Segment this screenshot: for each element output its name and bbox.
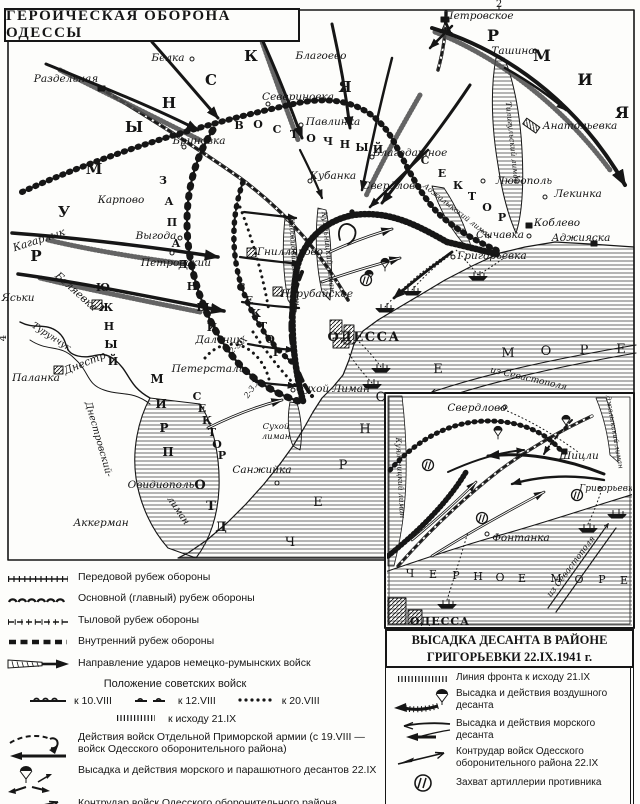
map-label: К — [244, 47, 258, 65]
map-label: Карпово — [97, 194, 145, 206]
legend-label: Передовой рубеж обороны — [78, 571, 384, 583]
legend-label: Линия фронта к исходу 21.IX — [456, 672, 628, 684]
map-title: ГЕРОИЧЕСКАЯ ОБОРОНА ОДЕССЫ — [6, 8, 298, 42]
map-label: А — [439, 18, 452, 37]
map-label: Петровское — [443, 10, 513, 22]
map-label: Благоево — [295, 50, 347, 62]
map-label: Е — [429, 568, 437, 581]
map-label: С — [237, 281, 246, 294]
map-label: ОДЕССА — [327, 330, 400, 345]
map-label: И — [155, 397, 166, 411]
map-label: Ташино — [491, 45, 534, 57]
inset-title-box: ВЫСАДКА ДЕСАНТА В РАЙОНЕ ГРИГОРЬЕВКИ 22.… — [385, 629, 634, 668]
map-label: О — [253, 118, 263, 131]
legend-label: к исходу 21.IX — [168, 713, 236, 725]
landing-symbol-icon — [6, 764, 78, 794]
map-label: Ы — [125, 118, 143, 136]
map-label: Турунчук — [30, 321, 73, 354]
map-label: У — [58, 203, 70, 221]
legend-item-main-line: Основной (главный) рубеж обороны — [6, 588, 384, 610]
pos-12-symbol-icon — [132, 693, 172, 708]
map-label: Сухой — [263, 422, 290, 432]
legend-label: Внутренний рубеж обороны — [78, 635, 384, 647]
pos-21-symbol-icon — [114, 711, 158, 726]
legend-right: Линия фронта к исходу 21.IX Высадка и де… — [385, 667, 634, 804]
map-label: Ы — [196, 301, 209, 314]
map-label: Ч — [406, 567, 415, 580]
map-label: Днестровский- — [82, 399, 114, 478]
primorsk-army-symbol-icon — [6, 731, 78, 761]
map-label: Ч — [285, 535, 295, 550]
map-label: Н — [162, 94, 176, 112]
map-page: СвердловоШицлиГригорьевкаФонтанкаОДЕССАи… — [0, 0, 640, 804]
pos-10-symbol-icon — [28, 693, 68, 708]
air-landing-symbol-icon — [390, 686, 456, 714]
front-line-21-symbol-icon — [390, 672, 456, 684]
legend-label: Действия войск Отдельной Приморской арми… — [78, 731, 384, 755]
map-label: Т — [206, 499, 216, 514]
legend-label: Контрудар войск Одесского оборонительног… — [78, 797, 384, 804]
map-label: Свердлово — [447, 402, 506, 414]
map-label: Севериновка — [262, 91, 334, 103]
legend-label: к 12.VIII — [178, 695, 216, 707]
legend-label: Высадка и действия воздушного десанта — [456, 688, 628, 712]
map-label: Т — [290, 128, 299, 141]
map-label: Овидиополь — [128, 479, 195, 491]
inner-line-symbol-icon — [6, 634, 78, 648]
map-label: С — [421, 154, 430, 167]
map-label: Нерубайское — [280, 288, 353, 300]
map-title-box: ГЕРОИЧЕСКАЯ ОБОРОНА ОДЕССЫ — [4, 8, 300, 42]
map-label: Р — [273, 346, 281, 359]
map-label: Коблево — [533, 217, 580, 229]
map-label: Аджияска — [551, 232, 611, 244]
map-label: А — [165, 195, 174, 208]
map-label: Т — [468, 190, 477, 203]
map-label: О — [574, 573, 583, 586]
map-label: Белка — [150, 52, 184, 64]
legend-item-inner-line: Внутренний рубеж обороны — [6, 631, 384, 653]
map-label: Раздельная — [33, 73, 98, 85]
forward-line-symbol-icon — [6, 570, 78, 584]
map-label: Р — [218, 449, 226, 462]
map-label: Е — [433, 362, 443, 377]
rear-line-symbol-icon — [6, 613, 78, 627]
map-label: В — [234, 119, 243, 132]
legend-left: Передовой рубеж обороны Основной (главны… — [6, 566, 384, 804]
map-label: 4 — [0, 335, 9, 341]
legend-label: Тыловой рубеж обороны — [78, 614, 384, 626]
map-label: Ю — [96, 281, 110, 294]
legend-item-air-landing: Высадка и действия воздушного десанта — [390, 686, 628, 714]
map-label: Р — [452, 569, 460, 582]
counterattack-22-arrow-icon — [390, 748, 456, 768]
legend-label: к 10.VIII — [74, 695, 112, 707]
map-label: Д — [215, 520, 227, 535]
map-label: Р — [498, 211, 506, 224]
map-label: Яськи — [0, 292, 34, 304]
main-line-symbol-icon — [6, 591, 78, 605]
map-label: Е — [245, 294, 253, 307]
pos-20-symbol-icon — [236, 693, 276, 708]
map-label: Н — [473, 570, 483, 583]
main-map-svg: СвердловоШицлиГригорьевкаФонтанкаОДЕССАи… — [0, 0, 640, 640]
map-label: Р — [580, 343, 589, 358]
map-label: Выгода — [135, 230, 177, 242]
map-label: Я — [615, 103, 629, 122]
map-label: Н — [359, 422, 370, 437]
map-label: 2-3.X — [242, 377, 262, 401]
map-label: Т — [259, 320, 268, 333]
map-label: Паланка — [11, 372, 60, 384]
map-label: Н — [340, 138, 350, 151]
map-label: Григорьевка — [578, 484, 638, 494]
map-label: Григорьевка — [456, 250, 526, 262]
map-label: Санжийка — [232, 464, 291, 476]
map-label: К — [453, 179, 463, 192]
map-label: Петровский — [140, 257, 211, 269]
map-label: Я — [338, 78, 351, 96]
map-label: Р — [30, 247, 41, 265]
map-label: Й — [108, 353, 118, 368]
map-label: Ы — [355, 141, 368, 154]
sukhoy-liman — [288, 402, 301, 450]
legend-label: к 20.VIII — [282, 695, 320, 707]
map-label: Кубанка — [309, 170, 356, 182]
map-label: Р — [159, 421, 168, 435]
counterattack-arrow-icon — [6, 797, 78, 804]
map-label: М — [550, 572, 561, 585]
map-label: О — [194, 478, 205, 493]
map-label: Е — [518, 572, 526, 585]
map-label: Фонтанка — [492, 532, 550, 544]
map-label: О — [306, 132, 316, 145]
map-label: З — [159, 174, 167, 187]
map-label: О — [541, 344, 552, 359]
map-label: Ж — [99, 301, 114, 314]
legend-item-sea-landing: Высадка и действия морского десанта — [390, 716, 628, 744]
legend-item-enemy-attack: Направление ударов немецко-румынских вой… — [6, 652, 384, 674]
map-label: Шицли — [558, 450, 599, 462]
artillery-capture-symbol-icon — [390, 772, 456, 794]
map-label: М — [501, 346, 514, 361]
map-label: лиман — [262, 432, 291, 442]
map-label: К — [251, 307, 261, 320]
map-label: П — [167, 216, 177, 229]
map-label: Павлинка — [305, 116, 360, 128]
map-label: Й — [207, 319, 217, 334]
map-label: Лекинка — [553, 188, 601, 200]
map-label: Аккерман — [72, 517, 128, 529]
legend-item-landing: Высадка и действия морского и парашютног… — [6, 764, 384, 794]
soviet-positions-header: Положение советских войск — [6, 678, 344, 690]
legend-label: Основной (главный) рубеж обороны — [78, 592, 384, 604]
map-label: М — [150, 372, 163, 386]
legend-item-artillery-capture: Захват артиллерии противника — [390, 772, 628, 794]
map-label: Ч — [323, 135, 333, 148]
map-label: Ы — [104, 338, 117, 351]
map-label: Петерсталь — [171, 363, 245, 375]
map-label: Н — [187, 280, 197, 293]
sea-landing-symbol-icon — [390, 716, 456, 744]
inset-map: СвердловоШицлиГригорьевкаФонтанкаОДЕССАи… — [385, 389, 639, 628]
map-label: И — [577, 70, 592, 89]
map-label: Р — [598, 573, 606, 586]
map-label: Е — [313, 495, 323, 510]
map-label: А — [172, 237, 181, 250]
map-label: Е — [620, 574, 628, 587]
legend-item-counterattack: Контрудар войск Одесского оборонительног… — [6, 797, 384, 804]
map-label: Д — [178, 258, 188, 271]
map-label: Сухой Лиман — [296, 383, 370, 395]
map-label: Й — [373, 141, 383, 156]
legend-date-row: к 10.VIII к 12.VIII к 20.VIII — [28, 692, 384, 710]
legend-item-rear-line: Тыловой рубеж обороны — [6, 609, 384, 631]
legend-item-forward-line: Передовой рубеж обороны — [6, 566, 384, 588]
map-label: М — [86, 160, 103, 178]
map-label: О — [482, 201, 492, 214]
legend-label: Захват артиллерии противника — [456, 777, 628, 789]
map-label: С — [273, 123, 282, 136]
map-label: Н — [104, 320, 114, 333]
legend-item-counterattack-22: Контрудар войск Одесского оборонительног… — [390, 746, 628, 770]
map-label: 2 — [496, 0, 502, 10]
map-label: Анатольевка — [542, 120, 618, 132]
legend-item-primorsk-army: Действия войск Отдельной Приморской арми… — [6, 731, 384, 761]
map-label: П — [162, 445, 173, 459]
map-label: М — [533, 46, 551, 65]
map-label: Бриновка — [171, 135, 225, 147]
legend-label: Контрудар войск Одесского оборонительног… — [456, 746, 628, 770]
legend-item-front-line-21: Линия фронта к исходу 21.IX — [390, 672, 628, 684]
enemy-attack-arrow-icon — [6, 655, 78, 671]
map-label: О — [376, 390, 387, 405]
map-label: О — [265, 333, 275, 346]
legend-label: Высадка и действия морского десанта — [456, 718, 628, 742]
map-label: Р — [487, 26, 499, 45]
inset-title-line2: ГРИГОРЬЕВКИ 22.IX.1941 г. — [427, 649, 592, 666]
legend-label: Высадка и действия морского и парашютног… — [78, 764, 384, 776]
map-label: О — [495, 571, 504, 584]
legend-date-21ix-row: к исходу 21.IX — [114, 710, 384, 728]
map-label: Р — [339, 458, 348, 473]
map-label: Свердлово — [362, 180, 421, 192]
map-label: Е — [438, 167, 446, 180]
legend-label: Направление ударов немецко-румынских вой… — [78, 657, 384, 669]
map-label: Е — [616, 342, 626, 357]
artillery-capture-symbol — [361, 275, 372, 286]
map-label: С — [205, 71, 217, 89]
map-label: Любополь — [495, 175, 553, 187]
inset-title-line1: ВЫСАДКА ДЕСАНТА В РАЙОНЕ — [412, 632, 608, 649]
